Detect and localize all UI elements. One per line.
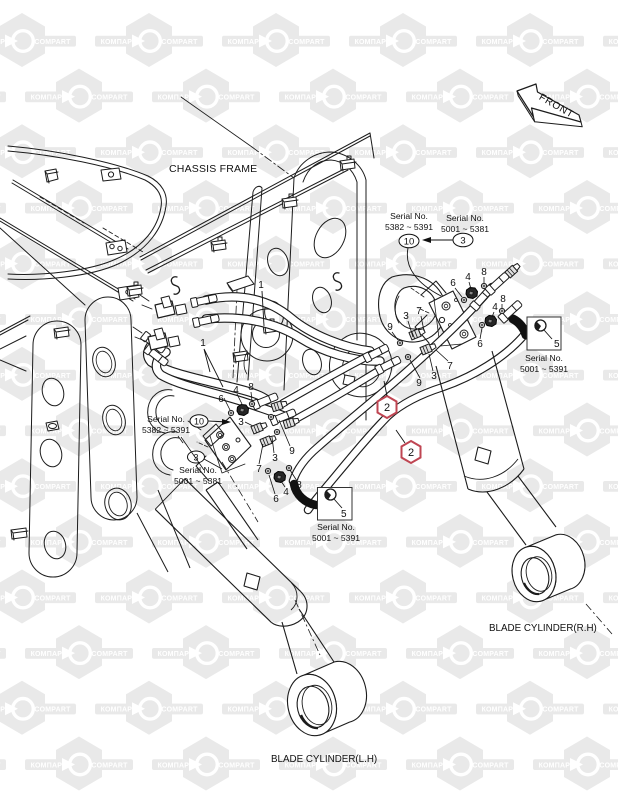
- svg-text:6: 6: [450, 278, 456, 289]
- svg-text:1: 1: [200, 338, 206, 349]
- svg-text:8: 8: [248, 382, 254, 393]
- svg-text:7: 7: [447, 361, 453, 372]
- svg-text:1: 1: [258, 280, 264, 291]
- svg-text:6: 6: [273, 494, 279, 505]
- svg-text:4: 4: [283, 487, 289, 498]
- svg-text:Serial No.: Serial No.: [525, 353, 563, 363]
- svg-text:3: 3: [403, 311, 409, 322]
- svg-text:4: 4: [233, 385, 239, 396]
- svg-text:8: 8: [296, 480, 302, 491]
- svg-text:6: 6: [218, 394, 224, 405]
- svg-text:5: 5: [341, 509, 347, 520]
- svg-text:5: 5: [554, 339, 560, 350]
- svg-text:BLADE CYLINDER(L.H): BLADE CYLINDER(L.H): [271, 754, 377, 765]
- svg-text:10: 10: [194, 417, 204, 427]
- svg-text:7: 7: [256, 464, 262, 475]
- svg-text:5382 ~ 5391: 5382 ~ 5391: [142, 425, 190, 435]
- svg-text:4: 4: [492, 302, 498, 313]
- svg-text:Serial No.: Serial No.: [390, 211, 428, 221]
- svg-text:3: 3: [272, 453, 278, 464]
- svg-text:5001 ~ 5391: 5001 ~ 5391: [312, 533, 360, 543]
- svg-text:Serial No.: Serial No.: [317, 522, 355, 532]
- svg-text:8: 8: [500, 294, 506, 305]
- svg-text:Serial No.: Serial No.: [446, 213, 484, 223]
- svg-text:7: 7: [416, 306, 422, 317]
- svg-text:9: 9: [416, 378, 422, 389]
- svg-text:Serial No.: Serial No.: [147, 414, 185, 424]
- svg-text:5001 ~ 5391: 5001 ~ 5391: [520, 364, 568, 374]
- svg-text:5001 ~ 5381: 5001 ~ 5381: [441, 224, 489, 234]
- svg-text:Serial No.: Serial No.: [179, 465, 217, 475]
- svg-text:2: 2: [408, 447, 414, 459]
- svg-text:6: 6: [477, 339, 483, 350]
- svg-text:8: 8: [481, 267, 487, 278]
- svg-text:10: 10: [404, 237, 415, 248]
- svg-text:3: 3: [431, 371, 437, 382]
- svg-text:9: 9: [387, 322, 393, 333]
- svg-text:2: 2: [384, 402, 390, 414]
- svg-text:4: 4: [465, 272, 471, 283]
- svg-text:3: 3: [460, 236, 465, 247]
- svg-text:9: 9: [289, 446, 295, 457]
- svg-text:CHASSIS FRAME: CHASSIS FRAME: [169, 163, 257, 175]
- svg-text:5382 ~ 5391: 5382 ~ 5391: [385, 222, 433, 232]
- svg-text:BLADE CYLINDER(R.H): BLADE CYLINDER(R.H): [489, 623, 597, 634]
- svg-text:3: 3: [238, 417, 244, 428]
- svg-text:5001 ~ 5381: 5001 ~ 5381: [174, 476, 222, 486]
